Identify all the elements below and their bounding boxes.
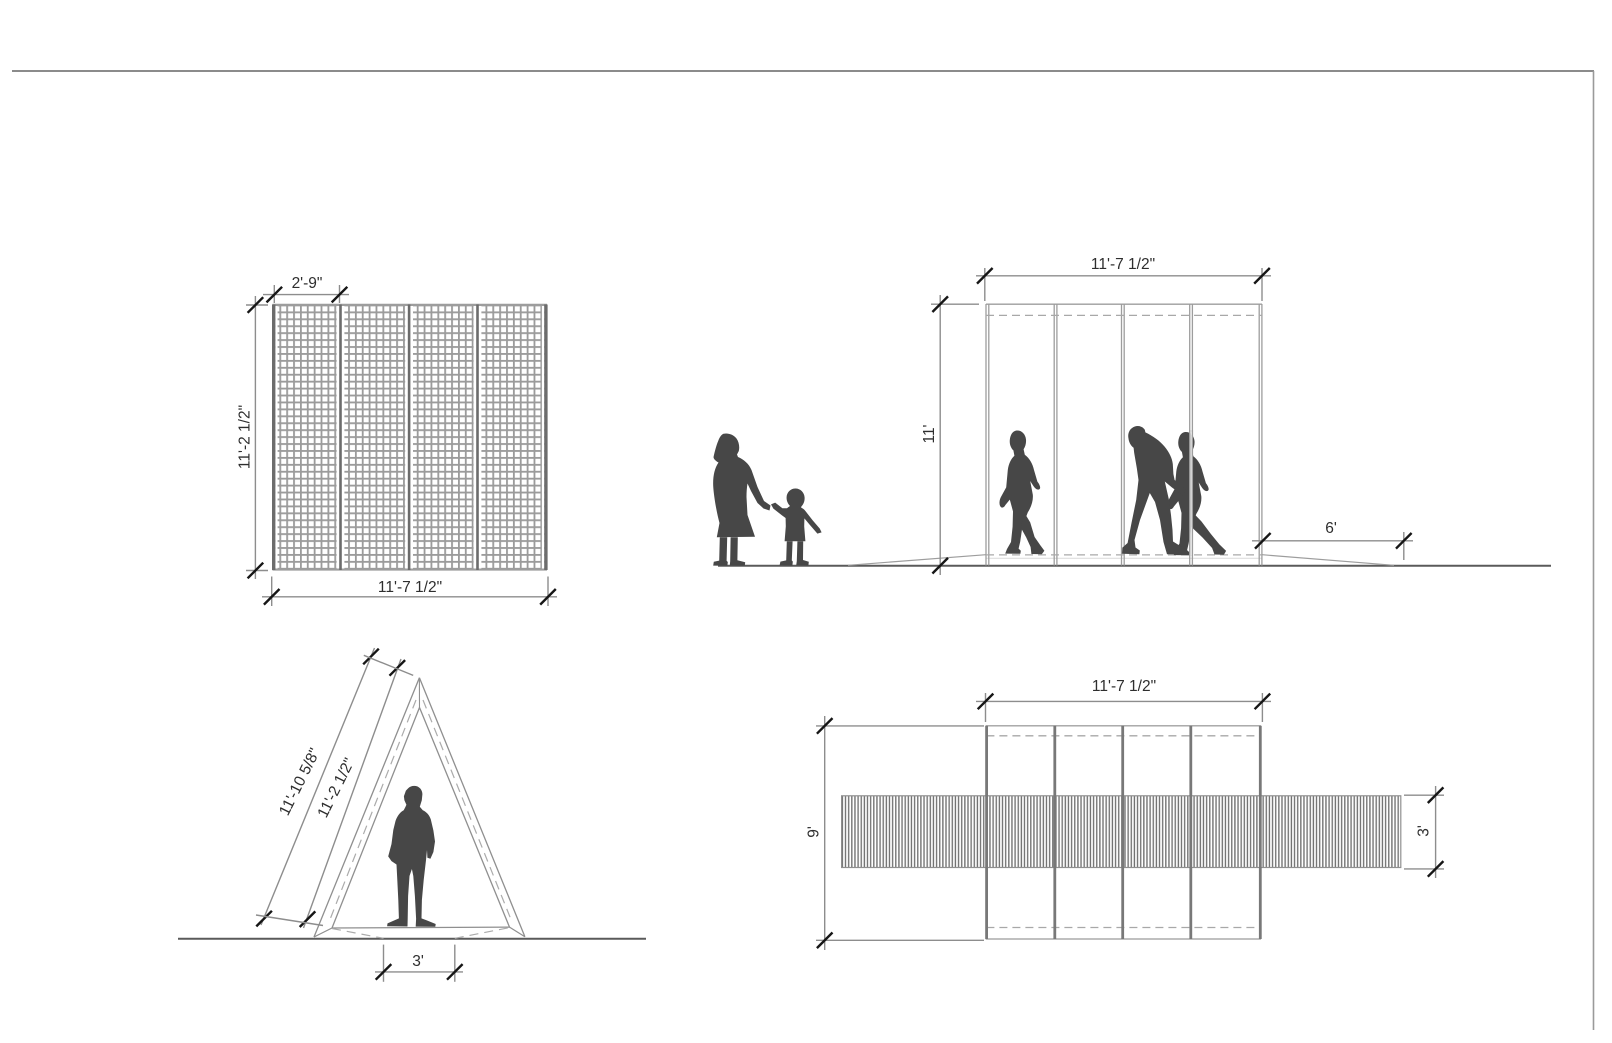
svg-text:11'-7 1/2": 11'-7 1/2" (1091, 256, 1155, 273)
svg-text:3': 3' (412, 953, 424, 970)
svg-text:9': 9' (806, 826, 823, 838)
svg-text:11'-2 1/2": 11'-2 1/2" (237, 405, 254, 469)
svg-text:11'-7 1/2": 11'-7 1/2" (1092, 678, 1156, 695)
svg-text:11'-2 1/2": 11'-2 1/2" (315, 755, 359, 820)
svg-text:11'-7 1/2": 11'-7 1/2" (378, 579, 442, 596)
svg-text:2'-9": 2'-9" (292, 275, 323, 292)
svg-text:11': 11' (921, 424, 938, 443)
svg-text:6': 6' (1325, 520, 1337, 537)
svg-text:3': 3' (1416, 825, 1433, 837)
